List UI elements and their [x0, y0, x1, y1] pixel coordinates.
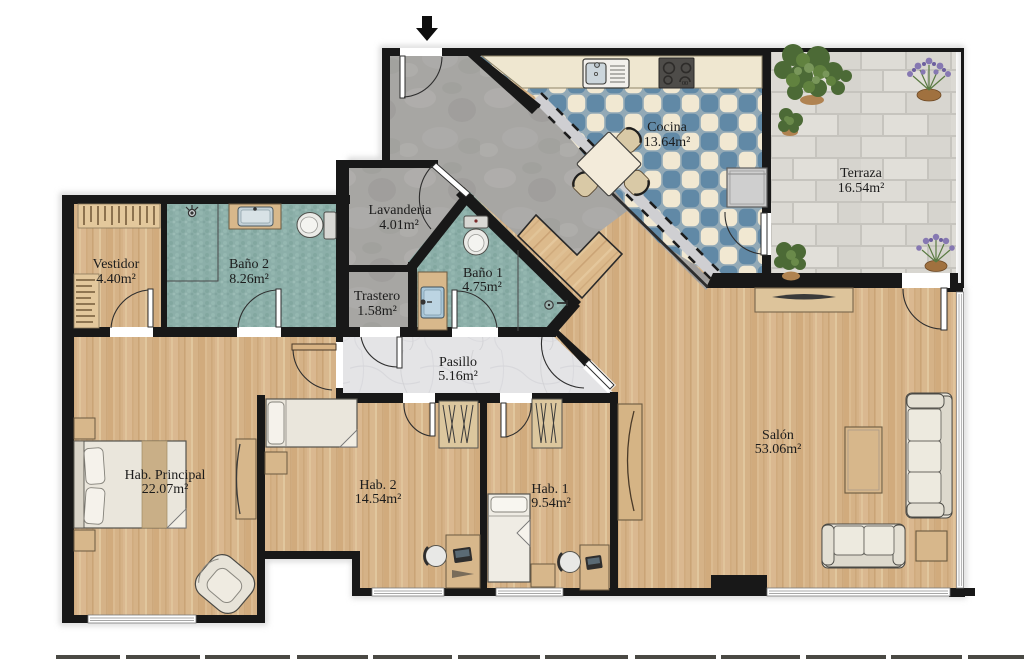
svg-text:22.07m²: 22.07m² [142, 482, 189, 497]
svg-text:Cocina: Cocina [647, 120, 687, 135]
svg-text:Hab. 2: Hab. 2 [359, 478, 396, 493]
svg-text:Pasillo: Pasillo [439, 355, 477, 370]
svg-text:5.16m²: 5.16m² [438, 369, 478, 384]
svg-text:9.54m²: 9.54m² [531, 496, 571, 511]
svg-text:1.58m²: 1.58m² [357, 304, 397, 319]
svg-text:53.06m²: 53.06m² [755, 442, 802, 457]
svg-text:Trastero: Trastero [354, 289, 400, 304]
svg-text:00: 00 [682, 81, 688, 87]
svg-text:Baño 2: Baño 2 [229, 257, 269, 272]
svg-text:Hab. Principal: Hab. Principal [125, 468, 206, 483]
svg-text:14.54m²: 14.54m² [355, 492, 402, 507]
svg-text:Salón: Salón [762, 428, 794, 443]
svg-text:13.64m²: 13.64m² [644, 135, 691, 150]
svg-text:4.75m²: 4.75m² [462, 280, 502, 295]
svg-text:Hab. 1: Hab. 1 [531, 482, 568, 497]
svg-text:4.01m²: 4.01m² [379, 218, 419, 233]
svg-text:Vestidor: Vestidor [93, 257, 140, 272]
svg-text:Lavanderia: Lavanderia [369, 203, 433, 218]
svg-text:16.54m²: 16.54m² [838, 181, 885, 196]
svg-text:4.40m²: 4.40m² [96, 272, 136, 287]
svg-text:Baño 1: Baño 1 [463, 266, 503, 281]
svg-text:8.26m²: 8.26m² [229, 272, 269, 287]
svg-text:Terraza: Terraza [840, 166, 883, 181]
